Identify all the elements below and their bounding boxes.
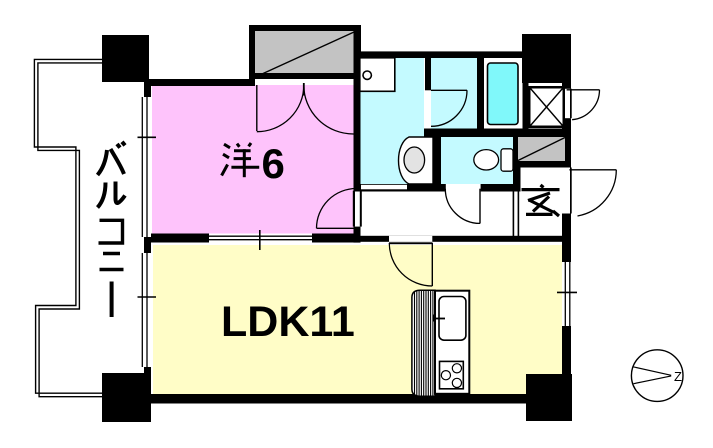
svg-text:Z: Z xyxy=(674,369,682,384)
svg-text:LDK11: LDK11 xyxy=(221,298,355,346)
svg-text:6: 6 xyxy=(262,140,285,187)
